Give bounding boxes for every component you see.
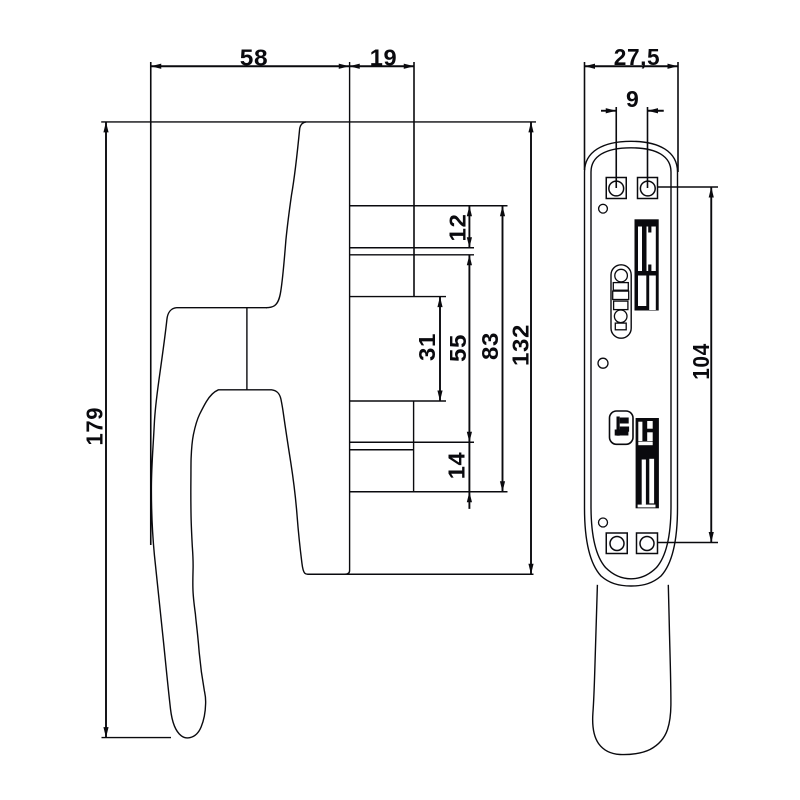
svg-text:83: 83 [477,332,503,360]
svg-text:14: 14 [444,452,470,480]
svg-text:132: 132 [508,324,534,366]
svg-text:58: 58 [240,45,269,71]
svg-text:179: 179 [82,407,108,446]
svg-text:55: 55 [445,334,471,362]
svg-text:31: 31 [414,333,440,361]
svg-text:9: 9 [626,86,639,112]
svg-text:104: 104 [688,343,714,380]
svg-text:19: 19 [370,45,398,71]
svg-text:12: 12 [445,214,471,242]
svg-text:27,5: 27,5 [614,44,661,70]
